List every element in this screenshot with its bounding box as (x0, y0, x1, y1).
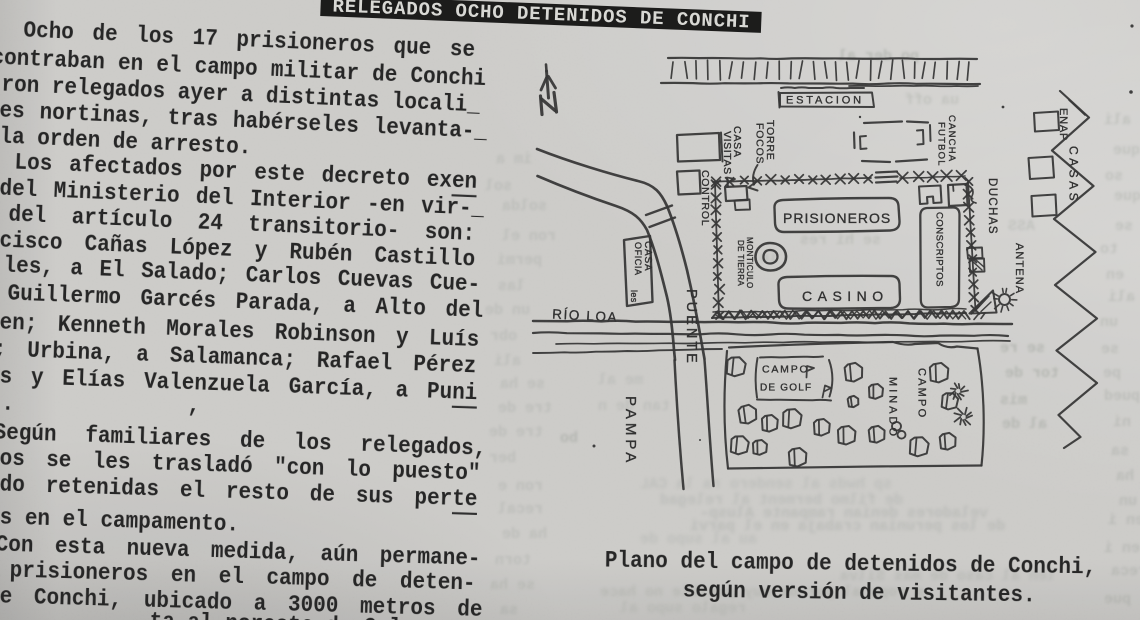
svg-text:DE GOLF: DE GOLF (760, 383, 812, 394)
svg-text:CONTROL: CONTROL (699, 170, 711, 226)
svg-text:FOCOS: FOCOS (754, 123, 766, 164)
svg-text:CASAS: CASAS (1067, 146, 1081, 204)
svg-text:CASINO: CASINO (802, 288, 889, 304)
svg-text:CAMPO: CAMPO (762, 364, 810, 376)
svg-text:CAMPO: CAMPO (916, 368, 928, 419)
svg-text:PAMPA: PAMPA (622, 396, 639, 466)
svg-text:CANCHA: CANCHA (946, 115, 957, 162)
svg-text:VISITAS: VISITAS (721, 131, 733, 175)
svg-text:PUENTE: PUENTE (683, 289, 699, 366)
svg-text:OFICIA: OFICIA (633, 242, 643, 276)
svg-text:DE TIERRA: DE TIERRA (736, 240, 745, 286)
svg-text:les: les (629, 290, 639, 303)
svg-text:ANTENA: ANTENA (1013, 243, 1025, 294)
svg-text:DUCHAS: DUCHAS (986, 178, 998, 235)
svg-text:PRISIONEROS: PRISIONEROS (783, 210, 891, 226)
svg-text:FUTBOL: FUTBOL (936, 122, 947, 167)
svg-text:ESTACION: ESTACION (786, 95, 864, 107)
svg-text:MONTICULO: MONTICULO (745, 237, 754, 289)
svg-text:MINADO: MINADO (887, 377, 899, 439)
svg-text:CONSCRIPTOS: CONSCRIPTOS (934, 212, 945, 287)
